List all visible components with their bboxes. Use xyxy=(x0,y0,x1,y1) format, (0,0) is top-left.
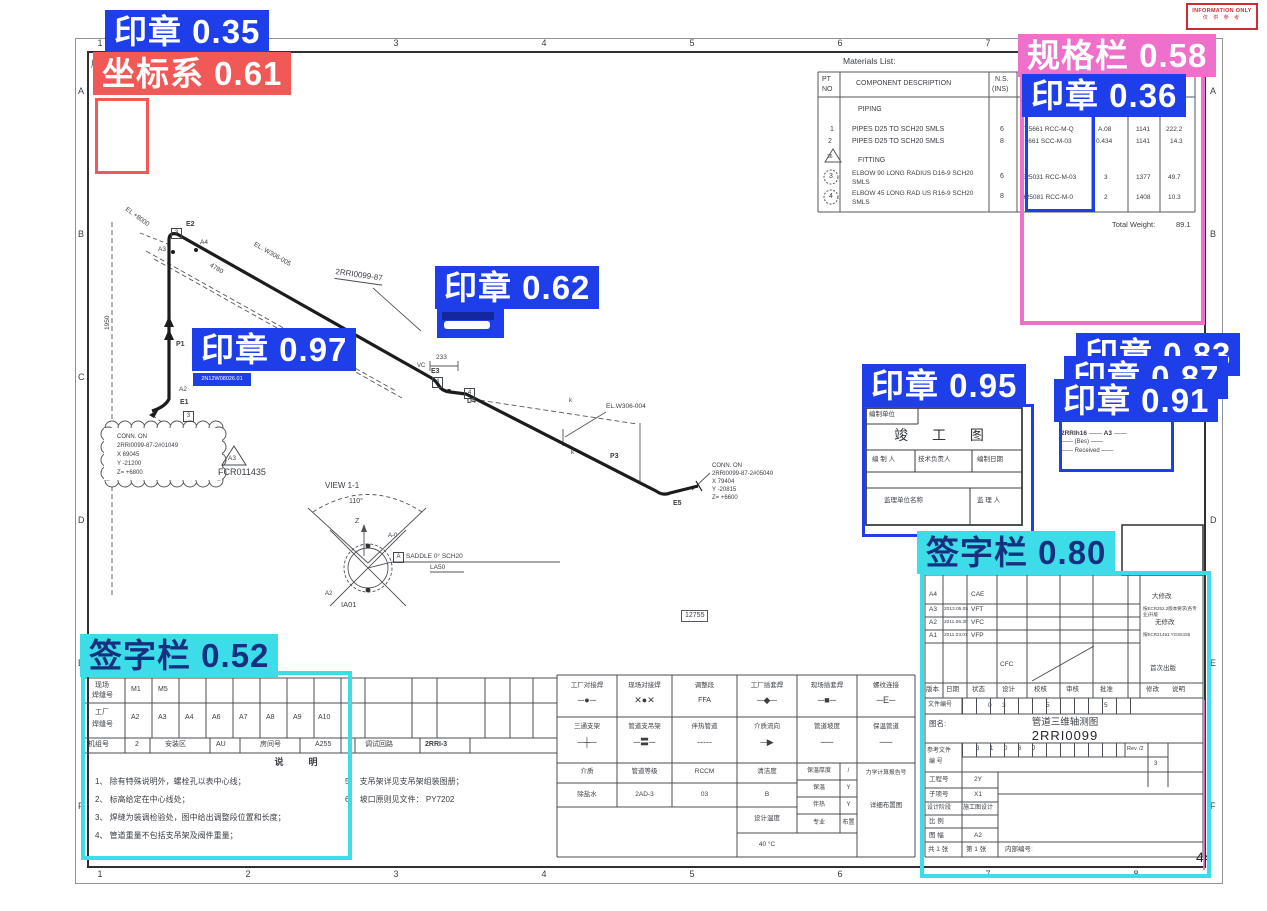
small-ref-box: 12755 xyxy=(681,610,708,622)
zone-left-a: A xyxy=(78,87,84,97)
node-e1: E1 xyxy=(180,399,189,407)
note-6: 6、 坡口原则见文件： PY7202 xyxy=(345,796,454,805)
legend-r2c6-label: 保温管道 xyxy=(857,723,915,730)
legend-r1c4-label: 工厂插套焊 xyxy=(737,682,797,689)
mat-r3-desc: ELBOW 90 LONG RADIUS D16-9 SCH20 xyxy=(852,170,973,177)
node-e2-box3: 3 xyxy=(171,228,182,239)
zone-bottom-1: 1 xyxy=(90,870,110,880)
legend-r1c3-symbol: FFA xyxy=(672,697,737,705)
materials-sec-fitting: FITTING xyxy=(858,157,885,165)
legend-clean-value: B xyxy=(737,791,797,798)
view-callout-text: SADDLE 0° SCH20 xyxy=(406,553,463,560)
legend-medium-label: 介质 xyxy=(557,768,617,775)
legend-r1c2-symbol: ✕●✕ xyxy=(617,696,672,706)
detection-box-sign-052[interactable] xyxy=(81,671,352,860)
label-text: 印章 xyxy=(114,13,182,50)
legend-r1c1-label: 工厂对接焊 xyxy=(557,682,617,689)
mat-r3-no: 3 xyxy=(829,173,833,181)
zone-bottom-3: 3 xyxy=(386,870,406,880)
legend-insul-th-label: 保温厚度 xyxy=(798,768,840,775)
label-score: 0.35 xyxy=(192,13,260,50)
legend-r2c1-label: 三通支架 xyxy=(557,723,617,730)
legend-heat-value: Y xyxy=(840,802,857,809)
mat-r4-desc2: SMLS xyxy=(852,199,870,206)
conn-e5-l2: 2RRI0099-87-2#05040 xyxy=(712,470,773,478)
view-detail-lines xyxy=(308,495,560,607)
zone-top-4: 4 xyxy=(534,39,554,49)
note-5: 5、 支吊架详见支吊架组装图册； xyxy=(345,778,464,787)
zone-bottom-5: 5 xyxy=(682,870,702,880)
info-only-line2: 仅 供 参 考 xyxy=(1188,14,1256,21)
zone-bottom-6: 6 xyxy=(830,870,850,880)
legend-r2c5-symbol: ── xyxy=(797,738,857,748)
node-d4: D4 xyxy=(467,398,476,406)
zone-top-6: 6 xyxy=(830,39,850,49)
label-score: 0.36 xyxy=(1109,77,1177,114)
legend-temp-value: 40 °C xyxy=(737,841,797,848)
label-score: 0.52 xyxy=(201,637,269,674)
legend-r1c6-label: 螺纹连接 xyxy=(857,682,915,689)
cloud-note-text: CONN. ON 2RRI0099-87-2#01049 X 69045 Y -… xyxy=(117,433,178,478)
detection-box-seal-062[interactable] xyxy=(437,307,504,338)
materials-h-no: NO xyxy=(822,86,833,94)
legend-insul-value: Y xyxy=(840,785,857,792)
revision-triangle-label: A3 xyxy=(228,455,236,462)
view-a0: A-0 xyxy=(388,533,397,540)
legend-discipline-value: 布置 xyxy=(840,820,857,827)
view-callout-la50: LA50 xyxy=(430,564,445,571)
detection-box-seal-095[interactable] xyxy=(862,404,1034,537)
label-score: 0.80 xyxy=(1038,534,1106,571)
legend-r1c4-symbol: ─◆─ xyxy=(737,696,797,706)
cloud-l4: Y -21200 xyxy=(117,460,178,469)
label-score: 0.58 xyxy=(1139,37,1207,74)
view-callout-a: A xyxy=(393,552,404,563)
mat-r3-ns: 6 xyxy=(1000,173,1004,181)
legend-r2c2-symbol: ─〓─ xyxy=(617,738,672,748)
conn-e5-l1: CONN. ON xyxy=(712,462,773,470)
mat-r3-desc2: SMLS xyxy=(852,179,870,186)
zone-top-3: 3 xyxy=(386,39,406,49)
weld-a2: A2 xyxy=(179,386,187,393)
legend-r1c3-label: 调整段 xyxy=(672,682,737,689)
node-p3: P3 xyxy=(610,453,619,461)
label-text: 印章 xyxy=(871,367,939,404)
mat-r4-desc: ELBOW 45 LONG RAD US R16-9 SCH20 xyxy=(852,190,973,197)
legend-temp-label: 设计温度 xyxy=(737,815,797,822)
label-text: 签字栏 xyxy=(926,534,1028,571)
legend-r2c1-symbol: ─┼─ xyxy=(557,738,617,748)
legend-r1c5-label: 现场插套焊 xyxy=(797,682,857,689)
label-text: 印章 xyxy=(1063,382,1131,419)
label-score: 0.62 xyxy=(522,269,590,306)
conn-e5-l5: Z= +6600 xyxy=(712,494,773,502)
detection-label-seal-095[interactable]: 印章 0.95 xyxy=(862,364,1026,407)
legend-insul-label: 保温 xyxy=(798,785,840,792)
legend-r2c3-label: 伴热管道 xyxy=(672,723,737,730)
commissioning-loop-label: 调试回路 xyxy=(365,741,393,749)
zone-right-b: B xyxy=(1210,230,1216,240)
legend-detail-drawing: 详细布置图 xyxy=(857,802,915,809)
legend-rccm-value: 03 xyxy=(672,791,737,798)
mat-r1-desc: PIPES D25 TO SCH20 SMLS xyxy=(852,126,944,134)
label-text: 印章 xyxy=(444,269,512,306)
materials-h-ns2: (INS) xyxy=(992,86,1008,94)
legend-class-value: 2AD-3 xyxy=(617,791,672,798)
legend-r1c2-label: 现场对接焊 xyxy=(617,682,672,689)
mark-vc: VC xyxy=(417,363,425,370)
node-e3-box4: 4 xyxy=(432,377,443,388)
legend-discipline-label: 专业 xyxy=(798,820,840,827)
mat-r2-desc: PIPES D25 TO SCH20 SMLS xyxy=(852,138,944,146)
node-p1: P1 xyxy=(176,341,185,349)
view-title: VIEW 1-1 xyxy=(325,482,359,491)
legend-r2c6-symbol: ── xyxy=(857,738,915,748)
legend-mech-report-label: 力学计算报告号 xyxy=(857,770,915,776)
detection-box-seal-036[interactable] xyxy=(1025,101,1095,212)
view-ia01: IA01 xyxy=(341,601,356,609)
legend-r2c4-symbol: ─▶ xyxy=(737,738,797,748)
weld-a4: A4 xyxy=(200,239,208,246)
cloud-l1: CONN. ON xyxy=(117,433,178,442)
label-score: 0.61 xyxy=(214,55,282,92)
zone-left-b: B xyxy=(78,230,84,240)
detection-label-coord-061[interactable]: 坐标系 0.61 xyxy=(93,52,291,95)
detection-box-seal-097[interactable]: 2N12W08026.01 xyxy=(193,373,251,386)
label-text: 印章 xyxy=(201,331,269,368)
cloud-l5: Z= +6800 xyxy=(117,469,178,478)
legend-r2c5-label: 管道坡度 xyxy=(797,723,857,730)
cloud-l2: 2RRI0099-87-2#01049 xyxy=(117,442,178,451)
small-stamp-bar xyxy=(444,321,490,329)
materials-title: Materials List: xyxy=(843,57,895,66)
detection-label-sign-052[interactable]: 签字栏 0.52 xyxy=(80,634,278,677)
label-score: 0.97 xyxy=(279,331,347,368)
node-e3: E3 xyxy=(431,368,440,376)
detection-label-seal-091[interactable]: 印章 0.91 xyxy=(1054,379,1218,422)
materials-h-pt: PT xyxy=(822,76,831,84)
mat-r1-ns: 6 xyxy=(1000,126,1004,134)
label-text: 规格栏 xyxy=(1027,37,1129,74)
label-score: 0.95 xyxy=(949,367,1017,404)
information-only-stamp: INFORMATION ONLY 仅 供 参 考 xyxy=(1186,3,1258,30)
legend-clean-label: 清洁度 xyxy=(737,768,797,775)
legend-medium-value: 除盐水 xyxy=(557,791,617,798)
view-angle: 110° xyxy=(349,498,363,506)
mat-r2-no: 2 xyxy=(828,138,832,146)
legend-class-label: 管道等级 xyxy=(617,768,672,775)
label-text: 坐标系 xyxy=(102,55,204,92)
legend-r2c3-symbol: ----- xyxy=(672,738,737,748)
small-stamp-smear xyxy=(442,312,494,320)
zone-top-7: 7 xyxy=(978,39,998,49)
legend-r1c6-symbol: ─E─ xyxy=(857,696,915,706)
weld-a3: A3 xyxy=(158,246,166,253)
label-text: 印章 xyxy=(1031,77,1099,114)
mat-r1-no: 1 xyxy=(830,126,834,134)
materials-h-desc: COMPONENT DESCRIPTION xyxy=(856,80,951,88)
detection-label-seal-035[interactable]: 印章 0.35 xyxy=(105,10,269,53)
materials-sec-piping: PIPING xyxy=(858,106,882,114)
mark-k1: k xyxy=(569,398,572,405)
legend-rccm-label: RCCM xyxy=(672,768,737,775)
fcr-number: FCR011435 xyxy=(218,468,266,478)
legend-r1c5-symbol: ─■─ xyxy=(797,696,857,706)
conn-e5-l3: X 79404 xyxy=(712,478,773,486)
annotated-drawing-canvas: 1 2 3 4 5 6 7 8 1 2 3 4 5 6 7 8 A B C D … xyxy=(0,0,1267,911)
view-a2: A2 xyxy=(325,591,332,598)
materials-tri-note: 36 xyxy=(827,155,833,161)
node-e5: E5 xyxy=(673,500,682,508)
zone-left-c: C xyxy=(78,373,85,383)
detection-box-sign-080[interactable] xyxy=(920,571,1211,878)
detection-label-seal-036[interactable]: 印章 0.36 xyxy=(1022,74,1186,117)
legend-r2c2-label: 管道支吊架 xyxy=(617,723,672,730)
materials-h-ns: N.S. xyxy=(995,76,1009,84)
legend-insul-th-value: / xyxy=(840,768,857,775)
mark-k2: k xyxy=(571,450,574,457)
label-text: 签字栏 xyxy=(89,637,191,674)
conn-e5-l4: Y -20815 xyxy=(712,486,773,494)
cloud-l3: X 69045 xyxy=(117,451,178,460)
zone-left-d: D xyxy=(78,516,85,526)
zone-right-a: A xyxy=(1210,87,1216,97)
node-e1-box3: 3 xyxy=(183,411,194,422)
zone-right-d: D xyxy=(1210,516,1217,526)
detection-label-seal-097[interactable]: 印章 0.97 xyxy=(192,328,356,371)
detection-label-sign-080[interactable]: 签字栏 0.80 xyxy=(917,531,1115,574)
detection-box-coord-system[interactable] xyxy=(95,98,149,174)
legend-r2c4-label: 介质流向 xyxy=(737,723,797,730)
mat-r4-ns: 8 xyxy=(1000,193,1004,201)
mat-r2-ns: 8 xyxy=(1000,138,1004,146)
mat-r4-no: 4 xyxy=(829,193,833,201)
dim-1950: 1950 xyxy=(104,316,111,330)
legend-r1c1-symbol: ─●─ xyxy=(557,696,617,706)
conn-note-e5: CONN. ON 2RRI0099-87-2#05040 X 79404 Y -… xyxy=(712,462,773,502)
commissioning-loop-value: 2RRI-3 xyxy=(425,741,447,749)
detection-label-seal-062[interactable]: 印章 0.62 xyxy=(435,266,599,309)
dim-elw304: EL.W306-004 xyxy=(606,403,646,410)
zone-bottom-4: 4 xyxy=(534,870,554,880)
detection-label-spec-058[interactable]: 规格栏 0.58 xyxy=(1018,34,1216,77)
dim-233: 233 xyxy=(436,354,447,361)
view-z-axis: Z xyxy=(355,518,359,526)
zone-bottom-2: 2 xyxy=(238,870,258,880)
legend-heat-label: 伴热 xyxy=(798,802,840,809)
zone-top-5: 5 xyxy=(682,39,702,49)
label-score: 0.91 xyxy=(1141,382,1209,419)
detection-box-edge-fragment xyxy=(1203,700,1205,870)
node-e2: E2 xyxy=(186,221,195,229)
